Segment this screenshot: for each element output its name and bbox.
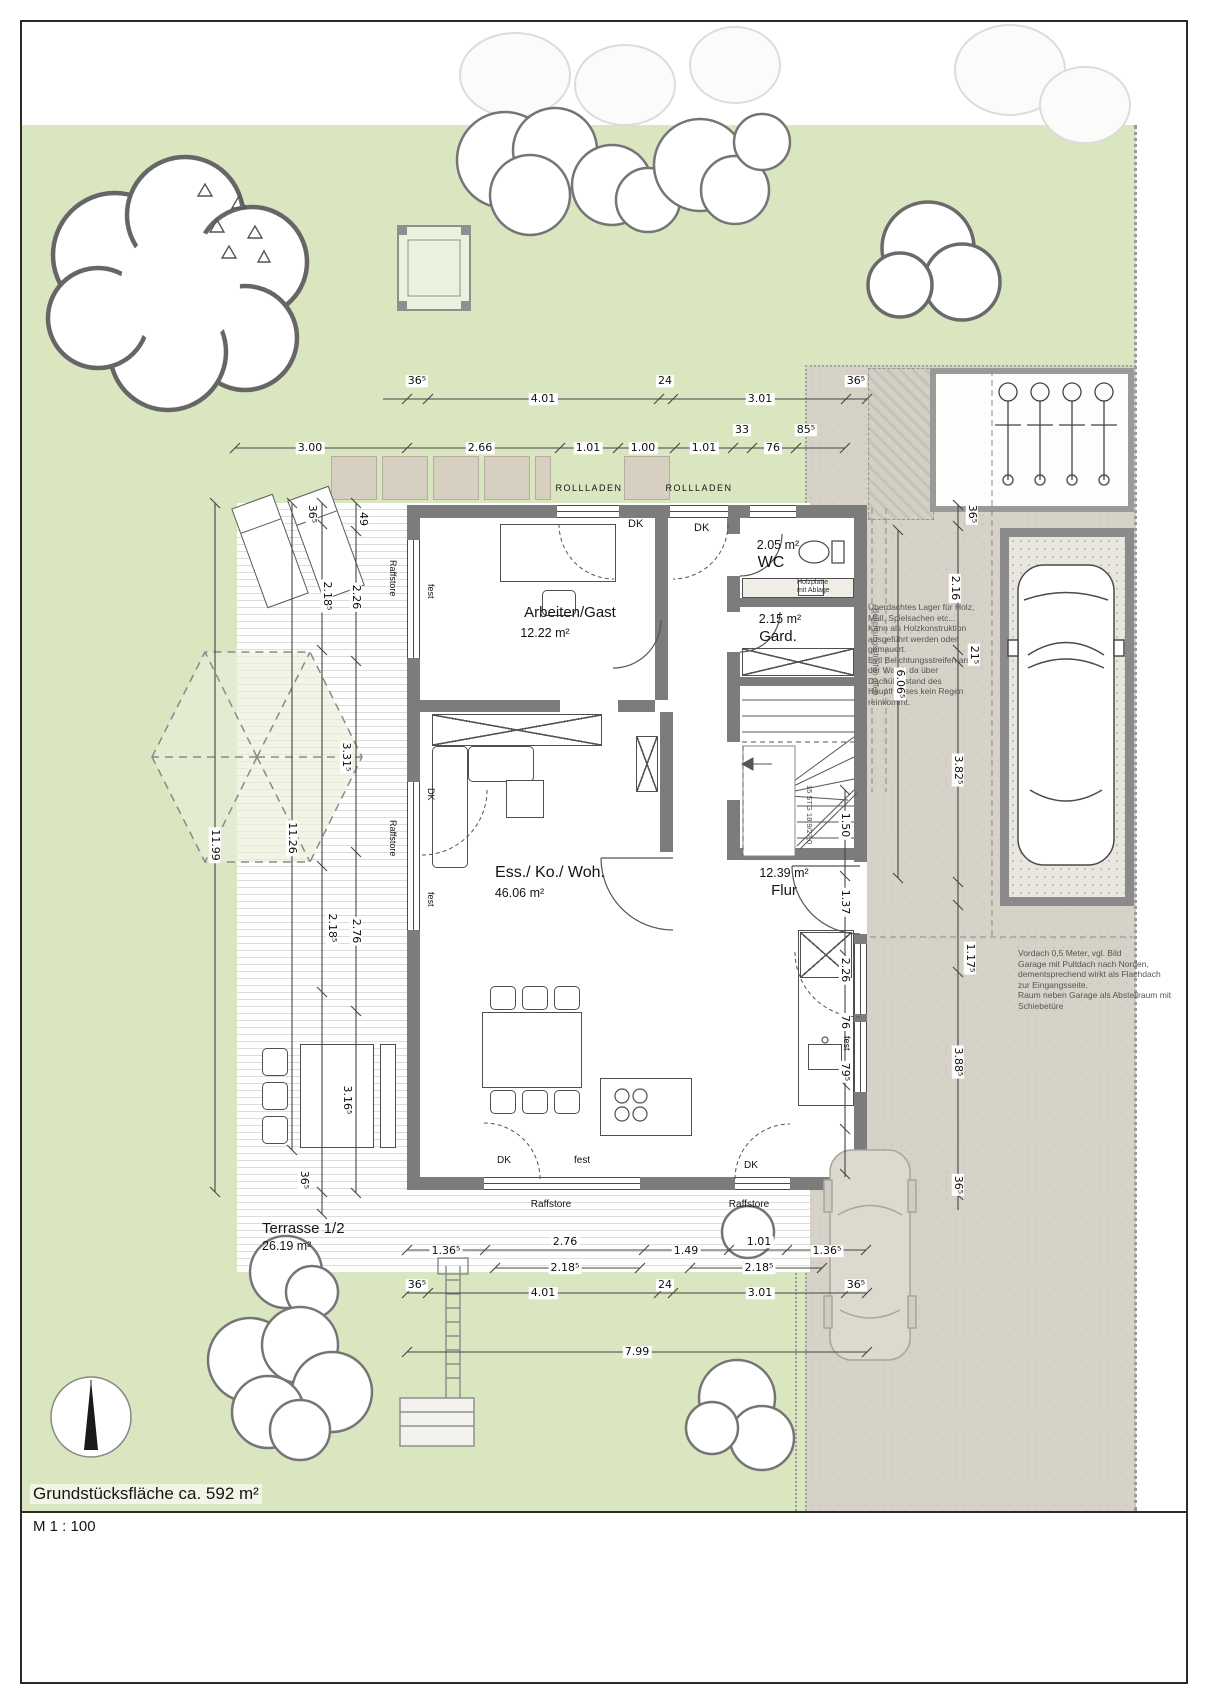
raffstore-label: Raffstore — [388, 560, 398, 596]
terrace-chair — [262, 1048, 288, 1076]
room-name: Terrasse 1/2 — [262, 1220, 387, 1237]
wall-arbeiten-living-a — [420, 700, 560, 712]
dim: 85⁵ — [795, 424, 817, 436]
dk-label: DK — [694, 522, 709, 534]
sideboard — [432, 714, 602, 746]
coffee-table — [506, 780, 544, 818]
dim: 4.01 — [529, 1287, 558, 1299]
dim: 2.18⁵ — [326, 912, 338, 945]
fest-label: fest — [426, 892, 436, 907]
terrace-chair — [262, 1116, 288, 1144]
dim: 3.01 — [746, 393, 775, 405]
window-north-2 — [670, 505, 728, 518]
dim: 24 — [656, 1279, 674, 1291]
dining-chair — [554, 986, 580, 1010]
terrace-table — [300, 1044, 374, 1148]
garage-note: Vordach 0,5 Meter, vgl. BildGarage mit P… — [1018, 948, 1171, 1011]
dim: 2.18⁵ — [743, 1262, 776, 1274]
dk-label: DK — [497, 1155, 511, 1166]
dim: 36⁵ — [845, 375, 867, 387]
window-north-wc — [750, 505, 796, 518]
kitchen-sink — [808, 1044, 842, 1070]
dim: 3.88⁵ — [952, 1046, 964, 1079]
dim: 36⁵ — [966, 503, 978, 525]
dim: 79⁵ — [839, 1061, 851, 1083]
room-name: WC — [745, 554, 797, 572]
dining-table — [482, 1012, 582, 1088]
wall-hall-stair-b — [727, 800, 740, 860]
kitchen-island — [600, 1078, 692, 1136]
room-name: Flur — [744, 882, 824, 899]
window-west-2 — [407, 782, 420, 930]
covered-storage-hatch — [868, 368, 934, 520]
dk-label: DK — [426, 788, 436, 801]
wall-stair-flur — [740, 848, 854, 860]
wc-shelf-note-line: mit Ablage — [797, 587, 830, 594]
room-name: Arbeiten/Gast — [490, 604, 650, 621]
dim: 2.76 — [551, 1236, 580, 1248]
scale-text: M 1 : 100 — [33, 1518, 96, 1535]
dim: 2.18⁵ — [321, 580, 333, 613]
garage — [1000, 528, 1134, 906]
sofa-horizontal — [468, 746, 534, 782]
dim: 1.50 — [839, 811, 851, 840]
tall-cabinet — [636, 736, 658, 792]
dim: 1.01 — [690, 442, 719, 454]
planter-box — [624, 456, 670, 500]
room-area: 2.15 m² — [748, 612, 812, 626]
window-south-2 — [735, 1177, 790, 1190]
dk-label: DK — [628, 518, 643, 530]
room-area: 12.22 m² — [480, 626, 610, 640]
window-west-1 — [407, 540, 420, 658]
dim: 3.16⁵ — [341, 1084, 353, 1117]
planter-box — [331, 456, 377, 500]
fest-label: fest — [426, 584, 436, 599]
dim: 3.82⁵ — [952, 754, 964, 787]
dim: 2.18⁵ — [549, 1262, 582, 1274]
floor-plan-page: Arbeiten/Gast 12.22 m² 2.05 m² WC 2.15 m… — [0, 0, 1206, 1700]
dim: 6.06⁵ — [894, 668, 906, 701]
dim: 7.99 — [623, 1346, 652, 1358]
wall-hall-stair-a — [727, 652, 740, 742]
dim: 2.16 — [949, 574, 961, 603]
terrace-chair — [262, 1082, 288, 1110]
dim: 4.01 — [529, 393, 558, 405]
dim: 1.36⁵ — [811, 1245, 844, 1257]
dim: 1.01 — [574, 442, 603, 454]
title-separator — [20, 1511, 1186, 1513]
desk — [500, 524, 616, 582]
room-area: 12.39 m² — [744, 866, 824, 880]
window-east-2 — [854, 1022, 867, 1092]
dim: 36⁵ — [952, 1174, 964, 1196]
wc-shelf-note: Holzplatte mit Ablage — [797, 579, 830, 595]
dim: 11.99 — [209, 827, 221, 863]
dim: 36⁵ — [298, 1169, 310, 1191]
planter-box — [433, 456, 479, 500]
dim: 24 — [656, 375, 674, 387]
dim: 1.00 — [629, 442, 658, 454]
dim: 2.66 — [466, 442, 495, 454]
wall-hall-wc-a — [727, 518, 740, 534]
dining-chair — [490, 1090, 516, 1114]
planter-box — [535, 456, 551, 500]
wall-arbeiten-living-b — [618, 700, 655, 712]
room-area: 46.06 m² — [462, 886, 577, 900]
room-area: 26.19 m² — [262, 1239, 352, 1253]
dining-chair — [522, 1090, 548, 1114]
dim: 36⁵ — [306, 503, 318, 525]
planter-box — [382, 456, 428, 500]
storage-note: Überdachtes Lager für Holz,Müll, Spielsa… — [868, 602, 974, 707]
fest-label: fest — [842, 1036, 852, 1051]
dim: 76 — [764, 442, 782, 454]
entry-door-opening — [854, 862, 867, 934]
dim: 2.26 — [350, 583, 362, 612]
bike-shed — [930, 368, 1134, 512]
rollladen-label: ROLLLADEN — [637, 483, 761, 493]
planter-box — [484, 456, 530, 500]
dim: 36⁵ — [406, 375, 428, 387]
dining-chair — [522, 986, 548, 1010]
sofa-vertical — [432, 746, 468, 868]
dim: 36⁵ — [845, 1279, 867, 1291]
dim: 36⁵ — [406, 1279, 428, 1291]
dim: 1.36⁵ — [430, 1245, 463, 1257]
dim: 21⁵ — [968, 644, 980, 666]
dim: 3.31⁵ — [340, 741, 352, 774]
raffstore-label: Raffstore — [714, 1199, 784, 1210]
dim: 2.26 — [839, 956, 851, 985]
dim: 2.76 — [350, 917, 362, 946]
rollladen-label: ROLLLADEN — [527, 483, 651, 493]
raffstore-label: Raffstore — [516, 1199, 586, 1210]
dim: 11.26 — [286, 820, 298, 856]
wall-hall-wc-b — [727, 576, 740, 612]
wall-wc-gard — [740, 598, 854, 607]
dim: 1.37 — [839, 888, 851, 917]
dining-chair — [554, 1090, 580, 1114]
wall-living-flur — [660, 712, 673, 852]
dim: 76 — [839, 1013, 851, 1031]
site-area-text: Grundstücksfläche ca. 592 m² — [30, 1484, 262, 1504]
raffstore-label: Raffstore — [388, 820, 398, 856]
wardrobe-closet — [742, 648, 854, 676]
window-south-1 — [484, 1177, 640, 1190]
window-north-1 — [557, 505, 619, 518]
room-name: Ess./ Ko./ Woh. — [470, 864, 630, 882]
dim: 49 — [357, 510, 369, 528]
stair-count-label: 15 STG 18,9/27,0 — [805, 785, 814, 844]
dim: 1.01 — [745, 1236, 774, 1248]
window-east-1 — [854, 944, 867, 1014]
dim: 1.49 — [672, 1245, 701, 1257]
dk-label: DK — [744, 1160, 758, 1171]
vegetation-edge-dotted — [1134, 125, 1137, 1511]
wall-arbeiten-hall — [655, 518, 668, 700]
dining-chair — [490, 986, 516, 1010]
dim: 1.17⁵ — [964, 942, 976, 975]
dim: 3.00 — [296, 442, 325, 454]
wc-shelf-note-line: Holzplatte — [797, 579, 828, 586]
dim: 33 — [733, 424, 751, 436]
dim: 3.01 — [746, 1287, 775, 1299]
wall-gard-stair — [740, 677, 854, 686]
fest-label: fest — [574, 1155, 590, 1166]
room-area: 2.05 m² — [745, 538, 811, 552]
terrace-bench — [380, 1044, 396, 1148]
room-name: Gard. — [748, 628, 808, 645]
